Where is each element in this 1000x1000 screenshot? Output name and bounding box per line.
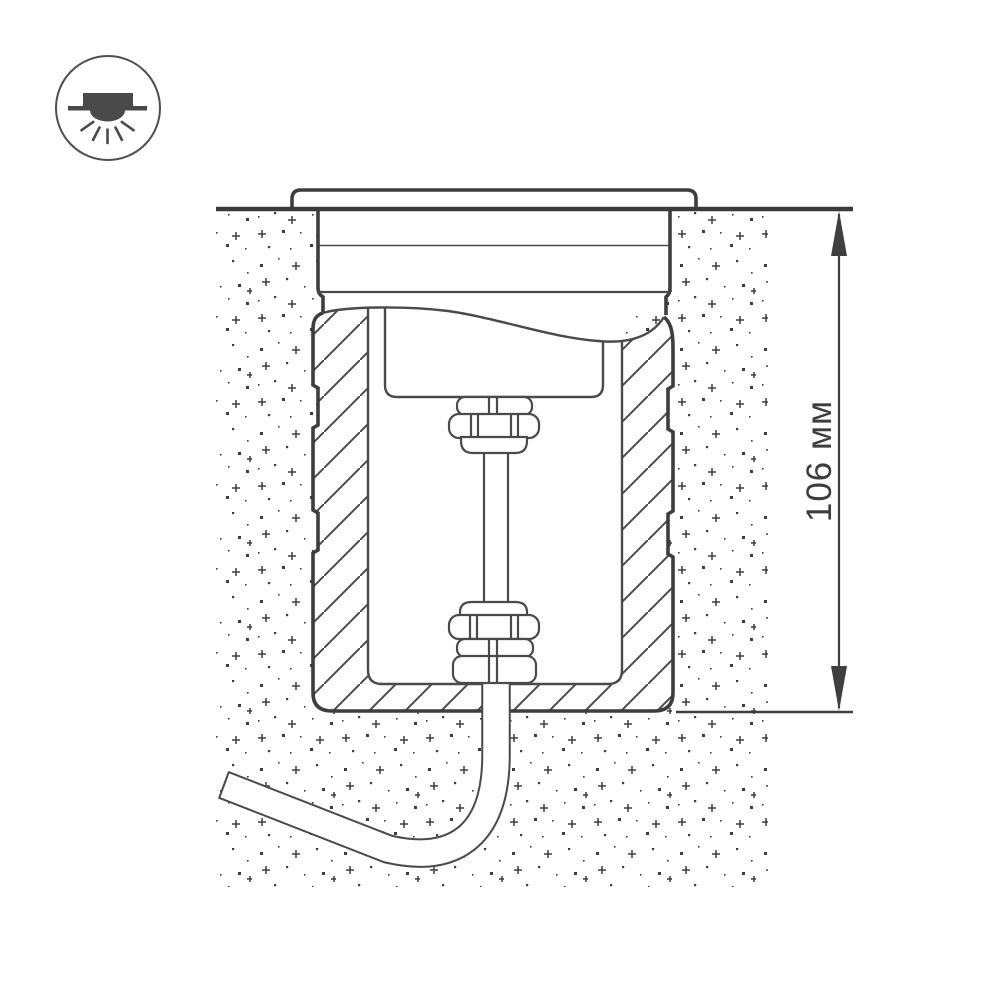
installation-drawing: 106 мм [0, 0, 1000, 1000]
housing-body-fill [318, 208, 670, 316]
gland-lower-base [453, 656, 536, 683]
gland-lower-washer [457, 639, 533, 657]
recessed-downlight-icon [56, 56, 160, 160]
cable-gland-lower [449, 602, 539, 683]
gland-lower-nut [449, 615, 539, 639]
diagram-canvas: 106 мм [0, 0, 1000, 1000]
gland-upper-washer [457, 397, 532, 415]
gland-upper-dome [461, 437, 527, 453]
gland-upper-nut [449, 414, 539, 438]
flange [292, 190, 696, 208]
dimension-arrow-up [831, 211, 847, 256]
flange-fill [292, 190, 696, 208]
icon-lamp-housing [83, 93, 133, 107]
dimension-label: 106 мм [800, 400, 839, 522]
icon-ceiling-bar [68, 106, 147, 111]
housing-upper-body [318, 208, 670, 316]
dimension-arrow-down [831, 666, 847, 711]
